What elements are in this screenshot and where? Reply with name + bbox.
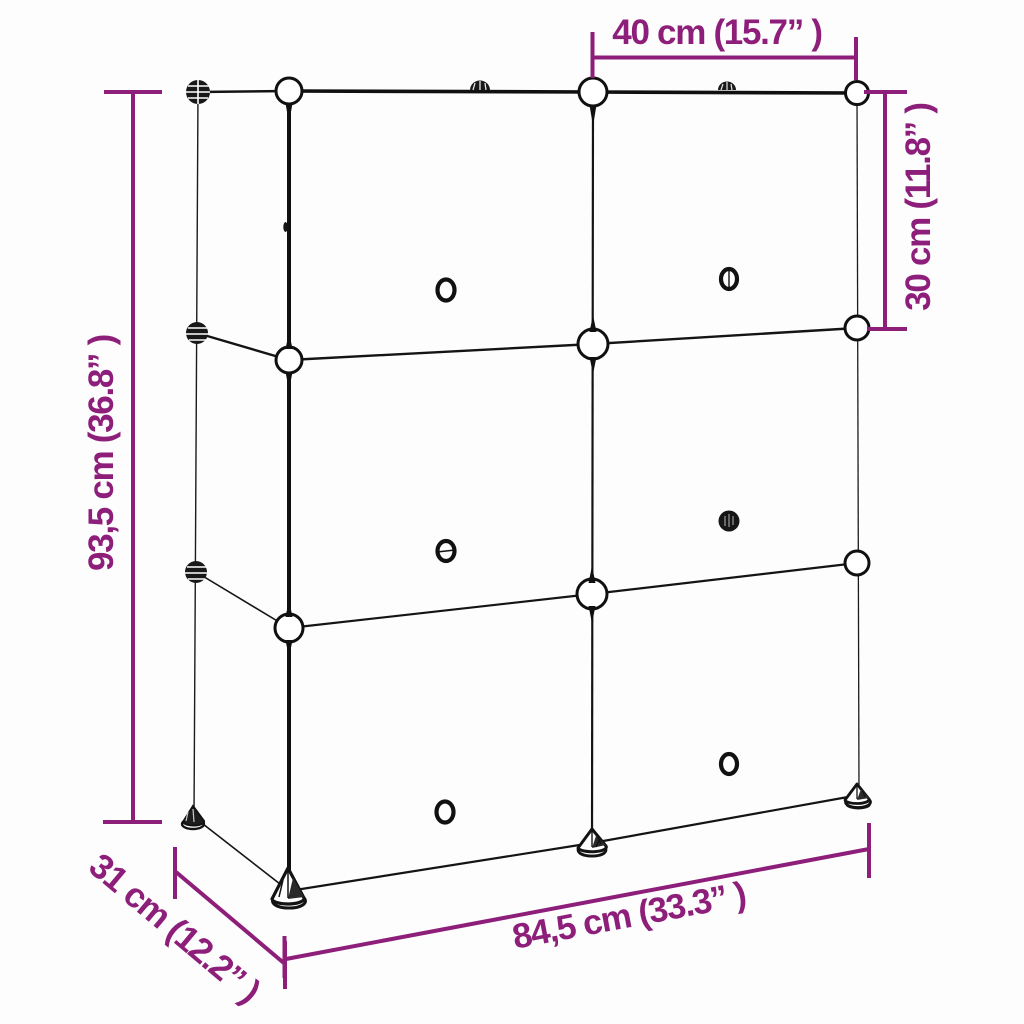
- svg-text:40 cm (15.7” ): 40 cm (15.7” ): [612, 13, 821, 52]
- svg-text:30 cm (11.8” ): 30 cm (11.8” ): [899, 103, 938, 311]
- svg-text:93,5 cm (36.8” ): 93,5 cm (36.8” ): [82, 335, 121, 571]
